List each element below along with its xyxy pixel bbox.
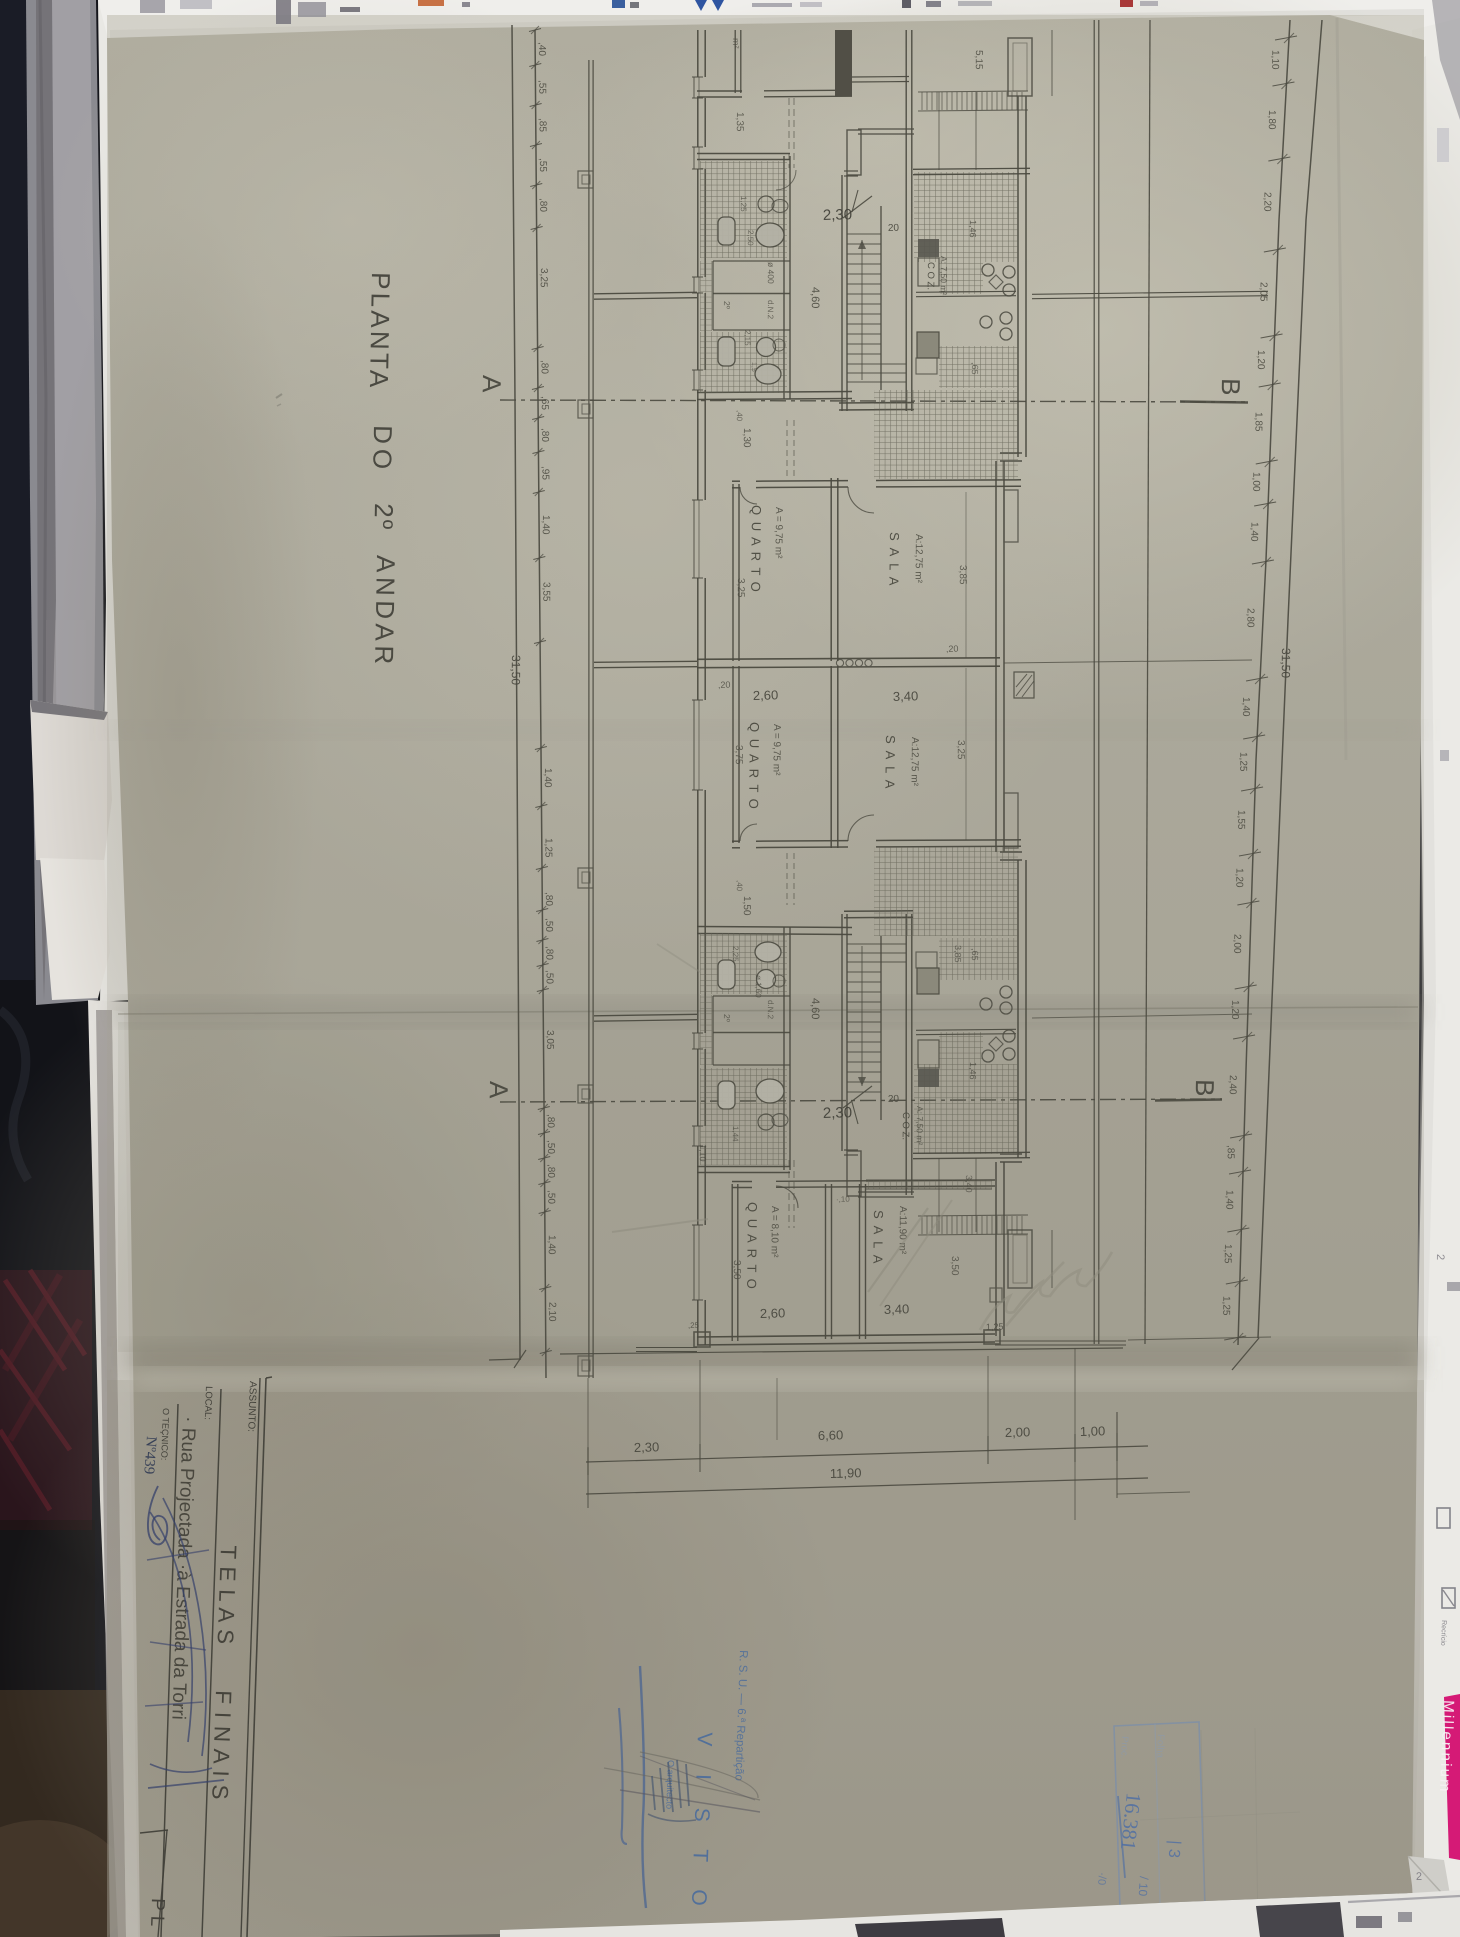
svg-text:,25: ,25 [688, 1321, 700, 1330]
svg-text:2,30: 2,30 [823, 1104, 853, 1122]
svg-text:2,40: 2,40 [1227, 1075, 1238, 1095]
svg-text:2º: 2º [722, 1014, 732, 1022]
svg-text:Recrício: Recrício [1439, 1620, 1447, 1646]
svg-text:6,60: 6,60 [818, 1427, 844, 1443]
svg-text:m²: m² [731, 38, 741, 49]
svg-text:,80: ,80 [539, 360, 550, 374]
svg-text:A:12,75 m²: A:12,75 m² [912, 534, 924, 584]
svg-text:1,80: 1,80 [1266, 110, 1277, 130]
svg-text:,65: ,65 [970, 948, 980, 961]
svg-text:1,10: 1,10 [1269, 50, 1280, 70]
svg-text:,40: ,40 [735, 410, 744, 422]
svg-text:,50: ,50 [545, 1140, 556, 1154]
svg-text:2,30: 2,30 [823, 206, 853, 224]
svg-text:,80: ,80 [539, 428, 550, 442]
svg-text:A: 7,50 m²: A: 7,50 m² [939, 256, 949, 295]
svg-text:ASSUNTO:: ASSUNTO: [245, 1381, 258, 1432]
svg-text:2,00: 2,00 [1005, 1424, 1031, 1440]
svg-text:S A L A: S A L A [870, 1210, 886, 1266]
svg-text:1,25: 1,25 [1222, 1244, 1233, 1264]
svg-text:Nº439: Nº439 [140, 1436, 159, 1475]
svg-text:/ 10: / 10 [1136, 1876, 1151, 1897]
svg-text:d.N.2: d.N.2 [766, 300, 775, 320]
svg-text:2,20: 2,20 [1261, 192, 1272, 212]
svg-text:2,50: 2,50 [746, 230, 755, 246]
svg-text:,20: ,20 [946, 644, 959, 654]
svg-text:,85: ,85 [1225, 1145, 1236, 1159]
svg-text:,80: ,80 [545, 1164, 556, 1178]
svg-text:,65: ,65 [970, 362, 980, 375]
svg-text:S A L A: S A L A [886, 532, 902, 588]
svg-text:1,25: 1,25 [1220, 1296, 1231, 1316]
svg-text:,80: ,80 [543, 946, 554, 960]
svg-text:·,10: ·,10 [836, 1195, 851, 1204]
svg-text:3,55: 3,55 [540, 582, 551, 602]
svg-text:3,50: 3,50 [731, 1260, 742, 1280]
svg-text:4,60: 4,60 [809, 287, 821, 309]
svg-text:d.N.2: d.N.2 [766, 1000, 775, 1020]
svg-text:| 3: | 3 [1165, 1840, 1183, 1859]
svg-text:,55: ,55 [536, 80, 547, 94]
svg-text:C O Z.: C O Z. [925, 262, 936, 290]
svg-text:3,50: 3,50 [949, 1256, 960, 1276]
svg-text:3,25: 3,25 [735, 578, 746, 598]
svg-text:1,46: 1,46 [968, 220, 978, 238]
svg-text:3,85: 3,85 [953, 945, 963, 963]
svg-text:A = 9,75 m²: A = 9,75 m² [772, 507, 784, 559]
svg-text:,50: ,50 [544, 970, 555, 984]
svg-text:2,60: 2,60 [760, 1305, 786, 1321]
svg-text:B: B [1216, 378, 1246, 396]
svg-text:DO: DO [367, 425, 398, 475]
svg-text:ø 400: ø 400 [766, 262, 776, 284]
svg-text:2,10: 2,10 [546, 1302, 557, 1322]
svg-text:1,55: 1,55 [1235, 810, 1246, 830]
svg-text:Folha: Folha [1154, 1734, 1166, 1759]
svg-text:3,75: 3,75 [733, 745, 744, 765]
svg-text:3,40: 3,40 [964, 1175, 974, 1193]
svg-text:3,40: 3,40 [884, 1301, 910, 1317]
svg-text:1,40: 1,40 [546, 1235, 557, 1255]
svg-text:A: A [484, 1081, 514, 1100]
svg-text:,80: ,80 [537, 198, 548, 212]
svg-text:1,40: 1,40 [542, 768, 553, 788]
svg-text:A = 9,75 m²: A = 9,75 m² [770, 724, 782, 776]
svg-text:3,40: 3,40 [893, 688, 919, 704]
svg-text:1,25: 1,25 [542, 838, 553, 858]
svg-text:,80: ,80 [545, 1114, 556, 1128]
svg-text:1,50: 1,50 [741, 896, 752, 916]
svg-text:1,20: 1,20 [1233, 868, 1244, 888]
svg-text:1,30: 1,30 [741, 428, 752, 448]
svg-text:20: 20 [888, 1094, 900, 1105]
svg-text:2º: 2º [369, 503, 399, 531]
svg-text:,20: ,20 [718, 680, 731, 690]
svg-text:1,25: 1,25 [739, 196, 748, 212]
svg-text:T E L A S: T E L A S [213, 1545, 241, 1646]
svg-text:LOCAL:: LOCAL: [202, 1386, 214, 1420]
svg-text:1,35: 1,35 [734, 112, 745, 132]
svg-text:1,10: 1,10 [698, 1144, 708, 1162]
svg-text:,85: ,85 [537, 118, 548, 132]
svg-text:1,40: 1,40 [1240, 697, 1251, 717]
svg-text:1,25: 1,25 [1237, 752, 1248, 772]
svg-text:B: B [1190, 1079, 1220, 1097]
svg-text:1,85: 1,85 [1252, 412, 1263, 432]
svg-text:ANDAR: ANDAR [369, 555, 401, 669]
svg-text:C O Z.: C O Z. [900, 1112, 911, 1140]
svg-text:1,40: 1,40 [540, 515, 551, 535]
svg-text:,50: ,50 [545, 1190, 556, 1204]
svg-text:11,90: 11,90 [830, 1465, 862, 1481]
svg-text:P L: P L [146, 1898, 168, 1927]
svg-text:A: A [477, 375, 507, 394]
svg-text:1,40: 1,40 [1248, 522, 1259, 542]
svg-text:3,25: 3,25 [538, 268, 549, 288]
svg-text:Q U A R T O: Q U A R T O [748, 505, 764, 593]
svg-text:2,15: 2,15 [743, 330, 752, 346]
svg-text:Q U A R T O: Q U A R T O [746, 722, 762, 810]
svg-text:Proc.: Proc. [1118, 1736, 1130, 1759]
svg-text:,95: ,95 [539, 466, 550, 480]
svg-text:A = 8,10 m²: A = 8,10 m² [768, 1206, 780, 1258]
svg-text:ø 1,60: ø 1,60 [754, 975, 763, 998]
svg-text:,50: ,50 [543, 918, 554, 932]
svg-text:1,40: 1,40 [1223, 1190, 1234, 1210]
svg-text:Q U A R T O: Q U A R T O [744, 1202, 760, 1290]
svg-text:31,50: 31,50 [1279, 648, 1293, 679]
svg-text:31,50: 31,50 [509, 655, 523, 686]
svg-text:F I N A I S: F I N A I S [207, 1690, 236, 1801]
svg-text:1,46: 1,46 [968, 1062, 978, 1080]
svg-text:·/0: ·/0 [1095, 1872, 1108, 1886]
svg-text:2,05: 2,05 [1257, 282, 1268, 302]
svg-text:2,25: 2,25 [731, 946, 740, 962]
svg-text:2,80: 2,80 [1244, 608, 1255, 628]
svg-text:1,00: 1,00 [1080, 1423, 1106, 1439]
svg-text:3,25: 3,25 [955, 740, 966, 760]
svg-text:1,00: 1,00 [1250, 472, 1261, 492]
svg-text:A: 7,50 m²: A: 7,50 m² [915, 1106, 925, 1145]
svg-text:,80: ,80 [543, 892, 554, 906]
svg-text:,65: ,65 [539, 396, 550, 410]
svg-text:,40: ,40 [735, 880, 744, 892]
svg-text:2,00: 2,00 [1231, 934, 1242, 954]
svg-text:3,05: 3,05 [544, 1030, 555, 1050]
svg-text:O TEÇNICO:: O TEÇNICO: [159, 1408, 171, 1461]
svg-text:1,20: 1,20 [1229, 1000, 1240, 1020]
svg-text:2,30: 2,30 [634, 1439, 660, 1455]
svg-text:2º: 2º [722, 301, 732, 309]
svg-text:A:11,90 m²: A:11,90 m² [896, 1206, 908, 1255]
svg-text:1,44: 1,44 [731, 1126, 740, 1142]
svg-text:,55: ,55 [537, 158, 548, 172]
svg-text:5,15: 5,15 [973, 50, 984, 70]
svg-text:,40: ,40 [536, 42, 547, 56]
svg-text:1,25: 1,25 [986, 1322, 1004, 1332]
svg-text:2: 2 [1434, 1254, 1446, 1260]
svg-text:A:12,75 m²: A:12,75 m² [908, 737, 920, 787]
svg-text:2,60: 2,60 [753, 687, 779, 703]
svg-text:1,20: 1,20 [1255, 350, 1266, 370]
svg-text:2: 2 [1416, 1871, 1422, 1883]
svg-text:20: 20 [888, 223, 900, 234]
svg-text:S A L A: S A L A [882, 735, 898, 791]
svg-text:PLANTA: PLANTA [364, 272, 396, 391]
svg-text:4,60: 4,60 [809, 998, 821, 1020]
